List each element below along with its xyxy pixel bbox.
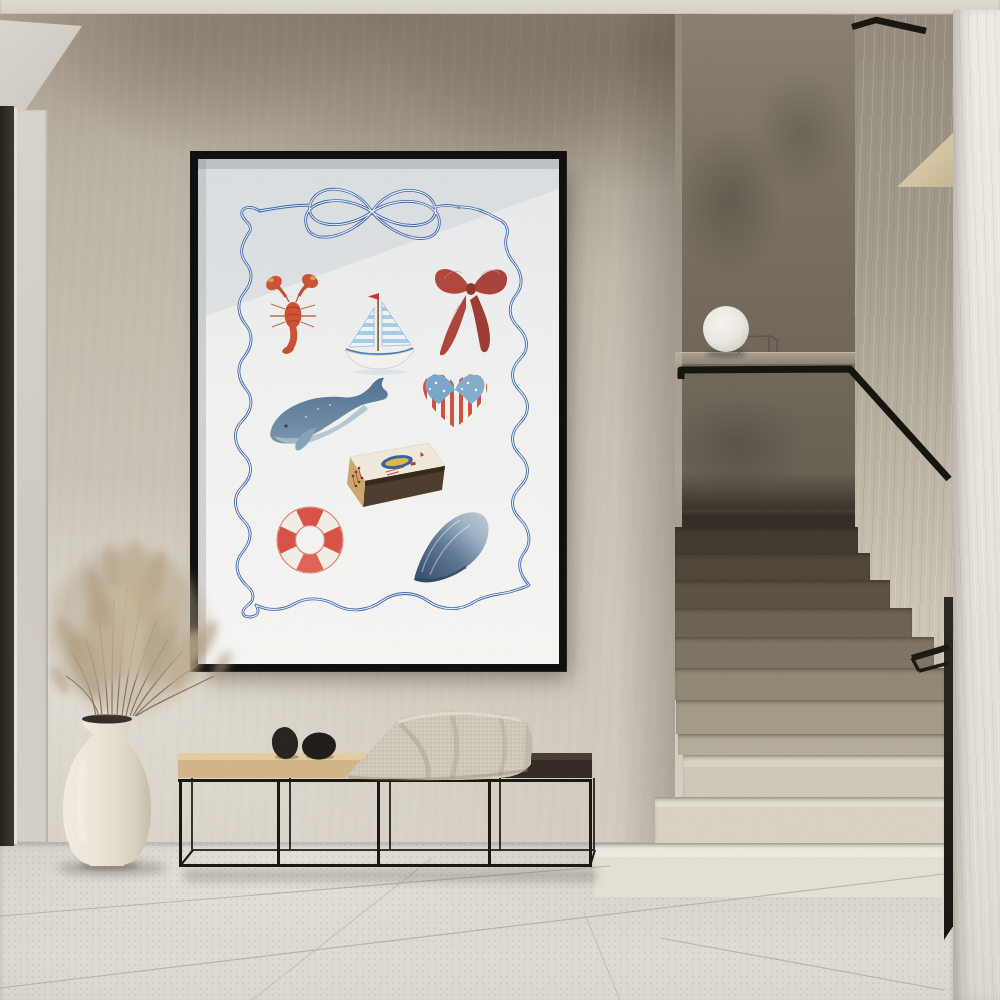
stair-top-shadow bbox=[675, 472, 860, 530]
doorway-reveal bbox=[0, 106, 14, 846]
stair-step bbox=[675, 637, 934, 668]
stair-step bbox=[655, 797, 944, 843]
stairwell-back-wall bbox=[675, 15, 856, 353]
doorway-side-panel bbox=[17, 110, 48, 842]
stair-step bbox=[593, 843, 944, 897]
stair-step bbox=[683, 755, 944, 797]
stair-step bbox=[675, 580, 890, 608]
poster-frame bbox=[190, 151, 567, 672]
wall-corner-shadow bbox=[617, 14, 675, 842]
stair-step bbox=[675, 553, 870, 580]
stair-step bbox=[675, 527, 858, 553]
foreground-wall bbox=[953, 10, 1000, 1000]
stair-step bbox=[678, 734, 944, 755]
stair-landing-ledge bbox=[675, 352, 856, 364]
poster-artwork bbox=[198, 159, 559, 664]
hallway-scene bbox=[0, 0, 1000, 1000]
stair-wall-trim bbox=[944, 597, 953, 940]
stair-step bbox=[675, 608, 912, 637]
stair-step bbox=[676, 700, 944, 734]
stair-step bbox=[675, 668, 944, 700]
